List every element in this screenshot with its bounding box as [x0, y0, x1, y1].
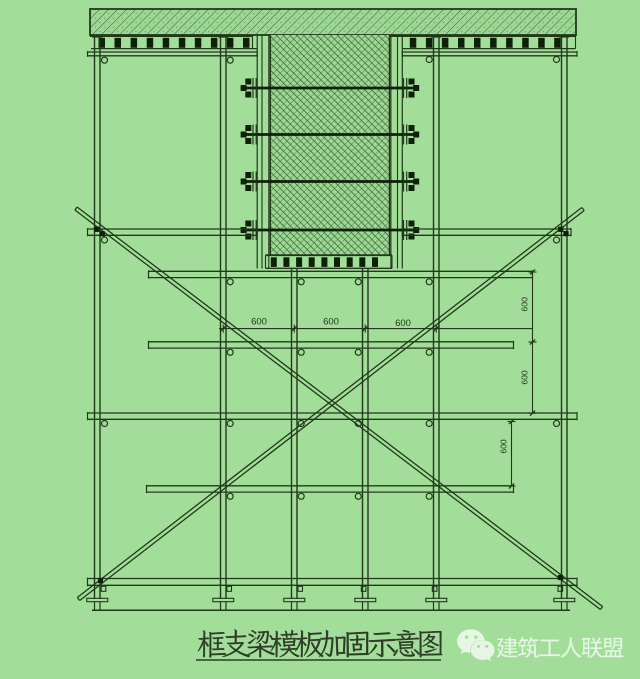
svg-text:600: 600	[519, 370, 529, 385]
svg-text:600: 600	[519, 297, 529, 312]
svg-text:600: 600	[251, 316, 267, 327]
svg-text:600: 600	[395, 318, 411, 329]
svg-text:600: 600	[498, 439, 508, 454]
svg-text:600: 600	[323, 316, 339, 327]
